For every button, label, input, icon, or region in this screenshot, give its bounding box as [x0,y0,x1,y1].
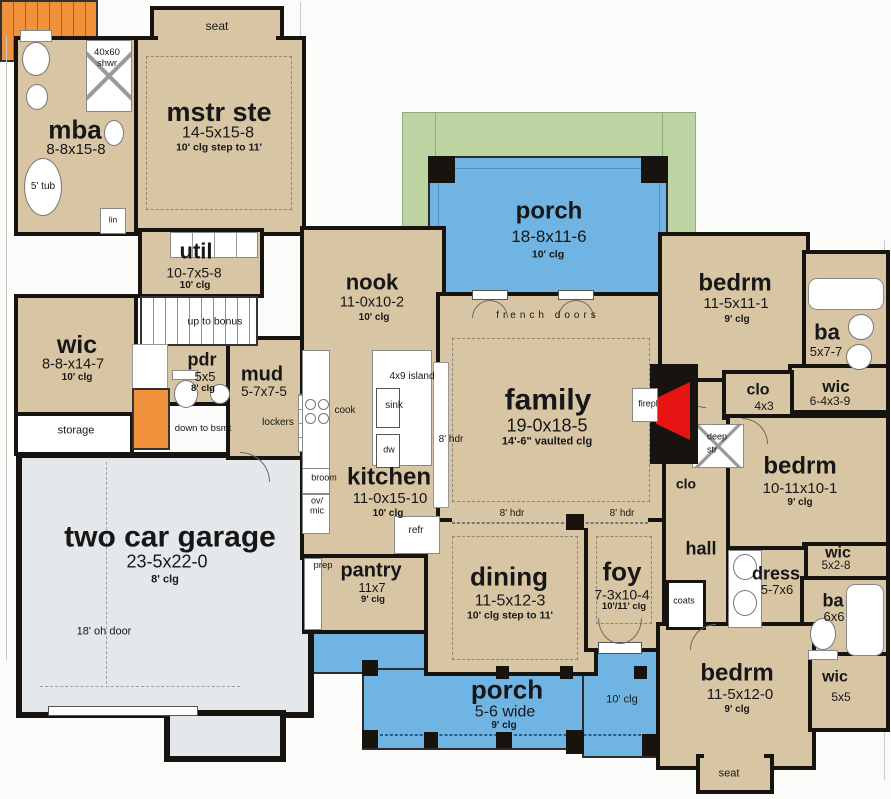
french-door-opening [558,290,594,300]
sink-fixture [104,120,124,146]
garage-door-opening [48,706,198,716]
room-label-porch-bottom: porch [471,676,543,703]
sink-fixture [733,590,757,616]
porch-column [424,732,438,748]
toilet-fixture [20,30,52,42]
island-label: 4x9 island [389,372,434,382]
header-label: 8' hdr [439,435,464,445]
room-label-wic-master: wic [57,332,97,358]
storage-label: storage [58,425,95,436]
garage-bump-out [164,710,286,762]
room-label-util: util [180,241,213,264]
porch-column [496,732,512,748]
broom-label: broom [311,473,337,482]
porch-post [428,156,455,183]
room-label-kitchen: kitchen [347,466,431,491]
room-label-mstr: mstr ste [166,98,271,126]
dims-label-wic-se: 5x5 [831,691,850,703]
sink-fixture [26,84,48,110]
clg-label-nook: 10' clg [359,313,390,323]
dims-label-ba-ne: 5x7-7 [810,345,843,359]
dims-label-pdr: 5x5 [195,370,216,384]
clg-label-porch-entry: 10' clg [606,694,637,705]
dims-label-wic-ne: 6-4x3-9 [810,395,851,407]
cooktop-label: cook [334,406,355,416]
room-label-ba-ne: ba [814,322,840,345]
porch-post [641,156,668,183]
bay-opening [704,750,764,760]
french-doors-label: french doors [496,311,600,321]
clg-label-porch-bottom: 9' clg [491,721,516,731]
toilet-fixture [22,42,50,76]
shower-label: shwr [97,59,117,69]
header-label: 8' hdr [610,509,635,519]
deep-storage-label: str [707,445,717,454]
exterior-dimension-line [300,2,301,36]
bathtub-fixture [808,278,884,310]
french-door-opening [472,290,508,300]
lockers-label: lockers [262,418,294,428]
room-label-mud: mud [241,365,283,386]
dims-label-dress: 5-7x6 [761,583,794,597]
clg-label-bedrm-se: 9' clg [724,705,749,715]
clg-label-garage: 8' clg [151,574,179,585]
wall-post [634,666,647,679]
dims-label-kitchen: 11-0x15-10 [353,491,428,507]
room-label-wic-se: wic [822,670,848,687]
clg-label-wic-master: 10' clg [62,373,93,383]
bathtub-fixture [846,584,884,656]
dims-label-ba-se: 6x6 [824,610,845,624]
dims-label-wic-master: 8-8-x14-7 [42,357,104,372]
cooktop-burner [318,399,329,410]
sink-label: sink [385,401,403,411]
dims-label-bedrm-e: 10-11x10-1 [763,481,838,497]
room-label-hall: hall [685,540,716,559]
clg-label-mstr: 10' clg step to 11' [176,143,262,154]
dims-label-mba: 8-8x15-8 [46,142,105,158]
clg-label-dining: 10' clg step to 11' [467,611,553,622]
room-label-mba: mba [48,116,101,143]
porch-column [642,734,660,756]
linen-label: lin [109,216,118,225]
room-label-bedrm-e: bedrm [763,455,836,480]
dims-label-util: 10-7x5-8 [166,266,221,281]
exterior-dimension-line [6,36,7,660]
clg-label-pdr: 8' clg [191,384,215,394]
room-label-clo-ne: clo [746,383,769,400]
basement-stairs-label: down to bsmt [175,424,232,434]
header-line [452,522,648,524]
clg-label-bedrm-ne: 9' clg [724,315,749,325]
coats-label: coats [673,596,695,605]
microwave-label: mic [310,506,324,515]
refrigerator-label: refr [409,526,424,536]
oven-label: ov/ [311,496,323,505]
toilet-fixture [808,650,838,660]
wall-post [560,666,573,679]
floor-plan: seat 40x60 shwr mba 8-8x15-8 5' tub lin … [0,0,891,799]
overhead-door-label: 18' oh door [77,626,132,637]
room-label-pantry: pantry [340,561,401,582]
room-label-dining: dining [470,563,548,590]
garage-center-line [106,462,108,684]
garage-door-line [40,686,240,688]
clg-label-porch-top: 10' clg [532,250,564,261]
room-label-ba-se: ba [822,592,843,611]
dims-label-porch-top: 18-8x11-6 [511,228,586,246]
dims-label-mstr: 14-5x15-8 [182,126,254,143]
shower-size-label: 40x60 [94,48,120,58]
dims-label-clo-ne: 4x3 [754,400,773,412]
room-label-dress: dress [752,565,800,584]
wall-post [566,514,584,530]
porch-column [566,730,584,754]
seat-label: seat [719,768,740,779]
room-label-bedrm-ne: bedrm [698,272,771,297]
bonus-stairs-label: up to bonus [188,317,243,328]
dims-label-nook: 11-0x10-2 [340,295,404,310]
dims-label-bedrm-se: 11-5x12-0 [707,687,773,703]
seat-label: seat [206,20,229,32]
stair-landing [132,344,168,390]
clg-label-foyer: 10'/11' clg [602,602,646,612]
clg-label-bedrm-e: 9' clg [787,498,812,508]
dishwasher-label: dw [383,445,395,454]
room-label-porch-top: porch [516,200,583,225]
prep-label: prep [313,561,332,571]
dims-label-family: 19-0x18-5 [506,417,587,436]
dims-label-garage: 23-5x22-0 [126,553,207,572]
kitchen-counter [302,350,330,474]
cooktop-burner [305,399,316,410]
deep-storage-label: deep [707,432,727,441]
dims-label-bedrm-ne: 11-5x11-1 [703,296,768,312]
clg-label-family: 14'-6" vaulted clg [502,436,592,447]
sink-fixture [846,344,872,370]
dims-label-mud: 5-7x7-5 [241,385,287,399]
fireplace-label: firepl [638,399,658,408]
room-label-nook: nook [346,272,399,295]
cooktop-burner [318,413,329,424]
porch-column [362,730,378,748]
dims-label-wic-e: 5x2-8 [822,561,851,573]
clg-label-kitchen: 10' clg [373,509,404,519]
bay-opening [158,34,276,42]
room-label-foyer: foy [603,558,642,585]
cooktop-burner [305,413,316,424]
stair-landing-orange [132,388,170,450]
clg-label-pantry: 9' clg [361,595,385,605]
porch-edge-line [370,734,656,736]
header-label: 8' hdr [500,509,525,519]
room-label-family: family [505,384,592,415]
room-label-pdr: pdr [188,351,217,370]
clg-label-util: 10' clg [180,281,211,291]
tub-label: 5' tub [31,182,55,192]
dims-label-dining: 11-5x12-3 [475,594,546,611]
room-label-garage: two car garage [64,521,276,552]
room-label-clo-hall: clo [676,477,696,492]
dims-label-pantry: 11x7 [358,581,385,595]
room-label-bedrm-se: bedrm [700,662,773,687]
toilet-fixture [848,314,874,340]
porch-column [362,660,378,676]
